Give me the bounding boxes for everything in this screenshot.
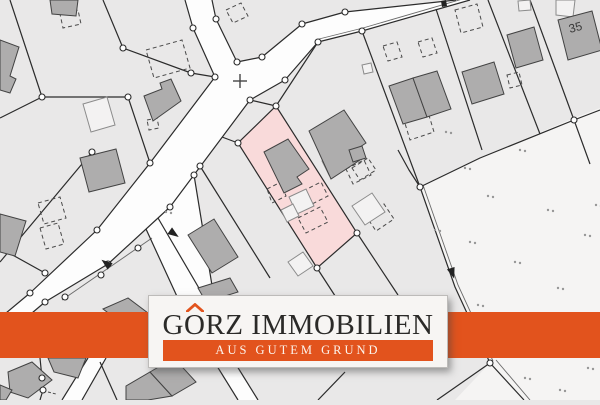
survey-point — [299, 21, 305, 27]
survey-point — [120, 45, 126, 51]
terrain-dot — [170, 212, 172, 214]
terrain-dot — [482, 305, 484, 307]
survey-point — [135, 245, 141, 251]
terrain-dot — [562, 288, 564, 290]
tagline-text: AUS GUTEM GRUND — [215, 344, 380, 357]
outbuilding — [362, 63, 373, 74]
survey-point — [27, 290, 33, 296]
terrain-dot — [592, 368, 594, 370]
outbuilding — [556, 0, 575, 17]
outbuilding — [518, 0, 531, 11]
terrain-dot — [564, 390, 566, 392]
survey-point — [167, 204, 173, 210]
terrain-dot — [487, 195, 489, 197]
survey-point — [191, 172, 197, 178]
terrain-dot — [474, 242, 476, 244]
survey-point — [147, 160, 153, 166]
terrain-dot — [469, 168, 471, 170]
terrain-dot — [595, 204, 597, 206]
logo-box: GORZ IMMOBILIEN AUS GUTEM GRUND — [148, 295, 448, 368]
survey-mark — [441, 0, 447, 7]
brand-title-o: O — [184, 309, 205, 341]
survey-point — [354, 230, 360, 236]
terrain-dot — [584, 234, 586, 236]
survey-point — [487, 360, 493, 366]
survey-point — [212, 74, 218, 80]
survey-point — [315, 39, 321, 45]
brand-title-g: G — [163, 311, 184, 340]
terrain-dot — [559, 389, 561, 391]
survey-point — [235, 140, 241, 146]
survey-point — [359, 28, 365, 34]
terrain-dot — [514, 261, 516, 263]
brand-title: GORZ IMMOBILIEN — [149, 296, 447, 340]
roof-accent-icon — [186, 303, 204, 312]
tagline-bar: AUS GUTEM GRUND — [163, 340, 433, 361]
terrain-dot — [524, 150, 526, 152]
survey-point — [282, 77, 288, 83]
survey-point — [39, 375, 45, 381]
survey-point — [273, 103, 279, 109]
survey-point — [98, 272, 104, 278]
survey-point — [42, 270, 48, 276]
terrain-dot — [450, 132, 452, 134]
survey-point — [247, 97, 253, 103]
terrain-dot — [519, 149, 521, 151]
building — [50, 0, 78, 16]
terrain-dot — [165, 211, 167, 213]
survey-point — [188, 70, 194, 76]
brand-title-rest: RZ IMMOBILIEN — [205, 311, 433, 340]
terrain-dot — [492, 196, 494, 198]
terrain-dot — [589, 235, 591, 237]
survey-point — [197, 163, 203, 169]
terrain-dot — [524, 377, 526, 379]
terrain-dot — [552, 210, 554, 212]
terrain-dot — [557, 287, 559, 289]
terrain-dot — [464, 167, 466, 169]
terrain-dot — [439, 230, 441, 232]
survey-point — [417, 184, 423, 190]
survey-point — [125, 94, 131, 100]
survey-point — [62, 294, 68, 300]
terrain-dot — [469, 241, 471, 243]
terrain-dot — [445, 131, 447, 133]
terrain-dot — [519, 262, 521, 264]
survey-point — [40, 387, 46, 393]
terrain-dot — [547, 209, 549, 211]
brand-title-o-wrap: O — [184, 311, 205, 340]
survey-point — [314, 265, 320, 271]
survey-point — [89, 149, 95, 155]
terrain-dot — [587, 367, 589, 369]
survey-point — [94, 227, 100, 233]
survey-point — [190, 25, 196, 31]
survey-point — [39, 94, 45, 100]
terrain-dot — [434, 229, 436, 231]
survey-point — [571, 117, 577, 123]
terrain-dot — [477, 304, 479, 306]
survey-point — [342, 9, 348, 15]
survey-point — [213, 16, 219, 22]
survey-point — [234, 59, 240, 65]
survey-point — [42, 299, 48, 305]
survey-point — [259, 54, 265, 60]
terrain-dot — [529, 378, 531, 380]
